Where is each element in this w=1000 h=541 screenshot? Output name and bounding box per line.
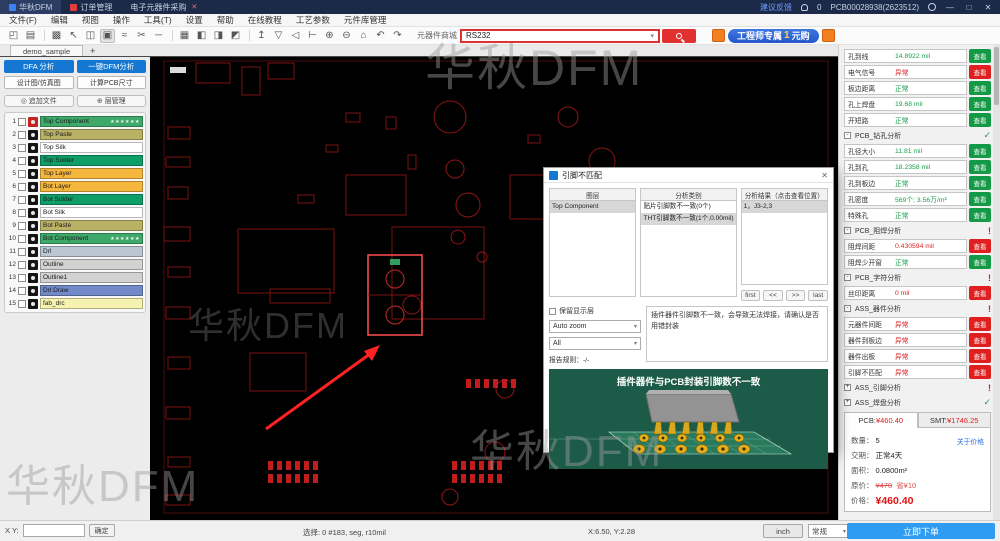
dialog-icon	[549, 171, 558, 180]
category-item-list: 贴片引脚数不一致(0个)THT引脚数不一致(1个,0.00mil)	[640, 201, 736, 297]
menu-bar: 文件(F)编辑视图操作工具(T)设置帮助在线教程工艺参数元件库管理	[0, 14, 1000, 27]
layer-name[interactable]: Top Layer ★★★★★★	[40, 168, 143, 179]
zoom-mode-value: Auto zoom	[553, 323, 586, 330]
keep-layer-checkbox[interactable]	[549, 308, 556, 315]
route-icon[interactable]: ≈	[117, 29, 132, 43]
layer-visibility-icon[interactable]	[28, 117, 38, 127]
tab-smt-price[interactable]: SMT: ¥1746.25	[918, 412, 992, 428]
layer-number: 10	[7, 235, 16, 242]
layer-row[interactable]: 2 Top Paste ★★★★★★	[7, 128, 143, 141]
confirm-button[interactable]: 确定	[89, 524, 115, 537]
dialog-title-bar[interactable]: 引脚不匹配 ✕	[544, 168, 833, 183]
app-tab-label: 华秋DFM	[19, 2, 52, 13]
menu-item[interactable]: 工艺参数	[296, 14, 330, 26]
analysis-row: 孔到板边 正常	[844, 176, 967, 190]
separator[interactable]	[249, 30, 250, 41]
layer-item-list: Top Component	[549, 201, 636, 297]
layer-number: 12	[7, 261, 16, 268]
layer-name-text: Top Component	[43, 118, 89, 125]
view-button[interactable]: 查看	[969, 349, 991, 363]
layer-list: 1 Top Component ★★★★★★ 2 Top Paste ★★★★★…	[4, 112, 146, 313]
layer-name-text: Top Layer	[43, 170, 72, 177]
layer-name[interactable]: Bot Solder ★★★★★★	[40, 194, 143, 205]
list-item[interactable]: THT引脚数不一致(1个,0.00mil)	[641, 213, 735, 225]
layer-row[interactable]: 14 Drl Draw ★★★★★★	[7, 284, 143, 297]
analysis-item: 引脚不匹配 引脚不匹配 异常 查看	[844, 364, 991, 380]
app-tab[interactable]: 华秋DFM	[0, 0, 61, 14]
layer-checkbox[interactable]	[18, 235, 26, 243]
layer-name[interactable]: Bot Silk ★★★★★★	[40, 207, 143, 218]
user-avatar[interactable]	[928, 3, 936, 11]
layer-name-text: Bot Layer	[43, 183, 71, 190]
analysis-value: 正常	[895, 115, 963, 125]
result-pagination: first<<>>last	[741, 290, 828, 301]
chevron-down-icon: ▾	[634, 323, 637, 330]
analysis-item: 元器件间距 元器件间距 异常 查看	[844, 316, 991, 332]
print-icon[interactable]: ▤	[23, 29, 38, 43]
view-button[interactable]: 查看	[969, 49, 991, 63]
analysis-row: 器件出板 异常	[844, 349, 967, 363]
view-button[interactable]: 查看	[969, 144, 991, 158]
bell-icon[interactable]	[801, 4, 808, 11]
layer-checkbox[interactable]	[18, 274, 26, 282]
layer-checkbox[interactable]	[18, 287, 26, 295]
promo-banner[interactable]: 工程师专属 1 元购	[712, 29, 835, 43]
layer-number: 9	[7, 222, 16, 229]
analysis-row: 孔上焊盘 19.68 mil	[844, 97, 967, 111]
analysis-item: - PCB_字符分析 ! PCB_字符分析 查看	[844, 270, 991, 285]
view-button[interactable]: 查看	[969, 208, 991, 222]
chevron-down-icon[interactable]: ▾	[650, 32, 654, 40]
view-button[interactable]: 查看	[969, 255, 991, 269]
analysis-item: 孔到线 孔到线 14.8922 mil 查看	[844, 48, 991, 64]
layer-row[interactable]: 13 Outline1 ★★★★★★	[7, 271, 143, 284]
layer-visibility-icon[interactable]	[28, 143, 38, 153]
section-status-icon: ✓	[983, 397, 991, 408]
layer-name[interactable]: Outline ★★★★★★	[40, 259, 143, 270]
flip-icon[interactable]: ◩	[228, 29, 243, 43]
layer-row[interactable]: 10 Bot Component ★★★★★★	[7, 232, 143, 245]
measure-icon[interactable]: ⊢	[305, 29, 320, 43]
layer-visibility-icon[interactable]	[28, 130, 38, 140]
pin-icon[interactable]: ↥	[254, 29, 269, 43]
layer-name[interactable]: Outline1 ★★★★★★	[40, 272, 143, 283]
menu-item[interactable]: 在线教程	[248, 14, 282, 26]
view-button[interactable]: 查看	[969, 176, 991, 190]
layer-mgmt-icon: ⊕	[97, 97, 103, 105]
collapse-icon[interactable]: -	[844, 132, 851, 139]
title-bar: 华秋DFM 订单管理 电子元器件采购 ✕ 建议反馈 0 PCB00028938(…	[0, 0, 1000, 14]
layer-number: 1	[7, 118, 16, 125]
maximize-button[interactable]: □	[964, 3, 974, 12]
redo-icon[interactable]: ↷	[390, 29, 405, 43]
order-tab-label: 订单管理	[80, 2, 112, 13]
layer-name-text: Bot Solder	[43, 196, 73, 203]
tab-close-icon[interactable]: ✕	[191, 3, 197, 11]
layer-row[interactable]: 11 Drl ★★★★★★	[7, 245, 143, 258]
analysis-row: 元器件间距 异常	[844, 317, 967, 331]
view-button[interactable]: 查看	[969, 192, 991, 206]
nav-button[interactable]: last	[808, 290, 828, 301]
result-column: 分析结果（点击查看位置） 1，J3-2,3 first<<>>last	[741, 188, 828, 301]
analysis-value: 异常	[895, 335, 963, 345]
layer-name[interactable]: Bot Component ★★★★★★	[40, 233, 143, 244]
layer-name-text: Top Silk	[43, 144, 66, 151]
order-management-tab[interactable]: 订单管理	[61, 0, 121, 14]
layer-visibility-icon[interactable]	[28, 156, 38, 166]
view-button[interactable]: 查看	[969, 317, 991, 331]
analysis-row: 板边距离 正常	[844, 81, 967, 95]
zoom-mode-select[interactable]: Auto zoom ▾	[549, 320, 641, 333]
layer-number: 13	[7, 274, 16, 281]
layer-visibility-icon[interactable]	[28, 208, 38, 218]
layer-checkbox[interactable]	[18, 300, 26, 308]
layer-checkbox[interactable]	[18, 118, 26, 126]
layer-row[interactable]: 5 Top Layer ★★★★★★	[7, 167, 143, 180]
analysis-value: 569个; 3.56万/m²	[895, 194, 963, 204]
collapse-icon[interactable]: +	[844, 399, 851, 406]
layer-checkbox[interactable]	[18, 183, 26, 191]
view-button[interactable]: 查看	[969, 113, 991, 127]
view-button[interactable]: 查看	[969, 333, 991, 347]
analysis-label: 器件到板边	[848, 335, 895, 345]
layer-name[interactable]: Bot Layer ★★★★★★	[40, 181, 143, 192]
analysis-label: 引脚不匹配	[848, 367, 895, 377]
xy-label: X Y:	[5, 526, 19, 535]
layer-visibility-icon[interactable]	[28, 221, 38, 231]
layer-visibility-icon[interactable]	[28, 169, 38, 179]
layer-number: 14	[7, 287, 16, 294]
analysis-label: 器件出板	[848, 351, 895, 361]
layer-row[interactable]: 7 Bot Solder ★★★★★★	[7, 193, 143, 206]
analysis-item: 电气信号 电气信号 异常 查看	[844, 64, 991, 80]
component-shop-label: 元器件商城	[417, 30, 457, 41]
layer-row[interactable]: 1 Top Component ★★★★★★	[7, 115, 143, 128]
view-button[interactable]: 查看	[969, 81, 991, 95]
layer-name[interactable]: Drl Draw ★★★★★★	[40, 285, 143, 296]
analysis-item: 阻焊间距 阻焊间距 0.430594 mil 查看	[844, 238, 991, 254]
layer-visibility-icon[interactable]	[28, 260, 38, 270]
separator[interactable]	[44, 30, 45, 41]
undo-icon[interactable]: ↶	[373, 29, 388, 43]
status-bar: X Y: 确定 选择: 0 #183, seg, r10mil X:6.50, …	[0, 520, 1000, 541]
coordinate-input[interactable]	[23, 524, 85, 537]
unit-toggle-button[interactable]: inch	[763, 524, 803, 538]
view-button[interactable]: 查看	[969, 160, 991, 174]
layer-visibility-icon[interactable]	[28, 299, 38, 309]
analysis-label: 阻焊少开窗	[848, 257, 895, 267]
analysis-list: 孔到线 孔到线 14.8922 mil 查看 电气信号 电气信号 异常 查看	[839, 45, 1000, 410]
analysis-row: 特殊孔 正常	[844, 208, 967, 222]
analysis-label: 元器件间距	[848, 319, 895, 329]
section-label: ASS_焊盘分析	[855, 398, 901, 408]
layer-name[interactable]: Top Silk ★★★★★★	[40, 142, 143, 153]
layer-name[interactable]: Top Component ★★★★★★	[40, 116, 143, 127]
nav-button[interactable]: >>	[786, 290, 806, 301]
analysis-value: 正常	[895, 178, 963, 188]
panel-icon[interactable]: ▩	[49, 29, 64, 43]
close-button[interactable]: ✕	[983, 3, 993, 12]
line-icon[interactable]: ─	[151, 29, 166, 43]
section-label: PCB_阻焊分析	[855, 226, 901, 236]
layer-checkbox[interactable]	[18, 157, 26, 165]
gift-icon	[712, 29, 725, 42]
layer-stars: ★★★★★★	[110, 119, 140, 125]
layer-row[interactable]: 9 Bot Paste ★★★★★★	[7, 219, 143, 232]
layer-row[interactable]: 8 Bot Silk ★★★★★★	[7, 206, 143, 219]
search-icon	[676, 33, 682, 39]
view-button[interactable]: 查看	[969, 365, 991, 379]
menu-item[interactable]: 视图	[82, 14, 99, 26]
align-left-icon[interactable]: ◧	[194, 29, 209, 43]
list-item[interactable]: 1，J3-2,3	[742, 201, 827, 213]
layer-number: 5	[7, 170, 16, 177]
section-label: PCB_钻孔分析	[855, 131, 901, 141]
analysis-value: 0 mil	[895, 290, 963, 297]
cut-icon[interactable]: ✂	[134, 29, 149, 43]
savings-value: 省¥10	[896, 480, 916, 491]
section-status-icon: !	[988, 273, 991, 283]
analysis-value: 正常	[895, 210, 963, 220]
layer-name-text: Top Paste	[43, 131, 72, 138]
pointer-arrow	[266, 345, 380, 429]
layer-number: 2	[7, 131, 16, 138]
section-label: PCB_字符分析	[855, 273, 901, 283]
column-header: 图层	[549, 188, 636, 201]
analysis-value: 11.81 mil	[895, 148, 963, 155]
analysis-item: - PCB_阻焊分析 ! PCB_阻焊分析 查看	[844, 223, 991, 238]
layer-checkbox[interactable]	[18, 196, 26, 204]
layer-name-text: Bot Paste	[43, 222, 71, 229]
layer-name[interactable]: Top Paste ★★★★★★	[40, 129, 143, 140]
about-price-link[interactable]: 关于价格	[957, 436, 984, 446]
menu-item[interactable]: 设置	[186, 14, 203, 26]
keep-layer-label: 保留显示层	[559, 306, 594, 316]
document-tab-bar: demo_sample +	[0, 45, 838, 57]
analysis-label: 孔上焊盘	[848, 99, 895, 109]
speaker-icon[interactable]: ◁	[288, 29, 303, 43]
analysis-row: 孔到孔 18.2358 mil	[844, 160, 967, 174]
layer-name[interactable]: Top Solder ★★★★★★	[40, 155, 143, 166]
tab-demo-sample[interactable]: demo_sample	[10, 45, 83, 56]
nav-button[interactable]: <<	[763, 290, 783, 301]
zoom-out-icon[interactable]: ⊖	[339, 29, 354, 43]
layer-visibility-icon[interactable]	[28, 286, 38, 296]
layer-number: 8	[7, 209, 16, 216]
menu-item[interactable]: 编辑	[51, 14, 68, 26]
menu-item[interactable]: 文件(F)	[9, 14, 37, 26]
component-purchase-tab[interactable]: 电子元器件采购 ✕	[121, 0, 206, 14]
promo-pill[interactable]: 工程师专属 1 元购	[728, 29, 819, 43]
tab-pcb-price[interactable]: PCB: ¥460.40	[844, 412, 918, 428]
layer-checkbox[interactable]	[18, 170, 26, 178]
analysis-item: - PCB_钻孔分析 ✓ PCB_钻孔分析 查看	[844, 128, 991, 143]
analysis-item: 孔上焊盘 孔上焊盘 19.68 mil 查看	[844, 96, 991, 112]
filter-icon[interactable]: ▽	[271, 29, 286, 43]
menu-item[interactable]: 帮助	[217, 14, 234, 26]
scrollbar[interactable]	[993, 45, 1000, 521]
add-tab-button[interactable]: +	[83, 46, 102, 56]
analysis-item: 孔到板边 孔到板边 正常 查看	[844, 175, 991, 191]
layer-visibility-icon[interactable]	[28, 273, 38, 283]
layer-number: 11	[7, 248, 16, 255]
layer-select-icon[interactable]: ◫	[83, 29, 98, 43]
list-item[interactable]: 贴片引脚数不一致(0个)	[641, 201, 735, 213]
layer-checkbox[interactable]	[18, 261, 26, 269]
analysis-panel: 孔到线 孔到线 14.8922 mil 查看 电气信号 电气信号 异常 查看	[838, 45, 1000, 521]
layer-management-button[interactable]: ⊕ 层管理	[77, 95, 147, 107]
layer-name[interactable]: Bot Paste ★★★★★★	[40, 220, 143, 231]
view-button[interactable]: 查看	[969, 286, 991, 300]
collapse-icon[interactable]: -	[844, 274, 851, 281]
layer-checkbox[interactable]	[18, 222, 26, 230]
mode-select[interactable]: 常规 ▾	[808, 524, 850, 538]
analysis-value: 18.2358 mil	[895, 164, 963, 171]
app-logo-icon	[9, 4, 16, 11]
dfa-analysis-button[interactable]: DFA 分析	[4, 60, 74, 73]
filter-value: All	[553, 340, 561, 347]
layer-visibility-icon[interactable]	[28, 247, 38, 257]
layer-name-text: Bot Component	[43, 235, 88, 242]
order-tab-icon	[70, 4, 77, 11]
layer-row[interactable]: 12 Outline ★★★★★★	[7, 258, 143, 271]
layer-visibility-icon[interactable]	[28, 182, 38, 192]
category-column: 分析类别 贴片引脚数不一致(0个)THT引脚数不一致(1个,0.00mil)	[640, 188, 736, 301]
collapse-icon[interactable]: -	[844, 227, 851, 234]
analysis-value: 异常	[895, 319, 963, 329]
analysis-item: - ASS_器件分析 ! ASS_器件分析 查看	[844, 301, 991, 316]
section-status-icon: ✓	[983, 130, 991, 141]
analysis-label: 特殊孔	[848, 210, 895, 220]
layer-mgmt-label: 层管理	[105, 96, 126, 106]
analysis-row: 器件到板边 异常	[844, 333, 967, 347]
pin-mismatch-dialog: 引脚不匹配 ✕ 图层 Top Component 分析类别 贴片引脚数不一致(0…	[543, 167, 834, 453]
result-item-list: 1，J3-2,3	[741, 201, 828, 285]
layer-row[interactable]: 6 Bot Layer ★★★★★★	[7, 180, 143, 193]
analysis-value: 19.68 mil	[895, 101, 963, 108]
separator[interactable]	[172, 30, 173, 41]
scrollbar-thumb[interactable]	[994, 47, 999, 105]
analysis-row: 孔密度 569个; 3.56万/m²	[844, 192, 967, 206]
layer-column: 图层 Top Component	[549, 188, 636, 301]
purchase-tab-label: 电子元器件采购	[130, 2, 186, 13]
component-search-input[interactable]: RS232 ▾	[460, 29, 660, 43]
lead-time-label: 交期：	[851, 450, 874, 461]
menu-item[interactable]: 操作	[113, 14, 130, 26]
search-value: RS232	[466, 31, 490, 40]
layer-checkbox[interactable]	[18, 144, 26, 152]
layer-visibility-icon[interactable]	[28, 195, 38, 205]
order-number: PCB00028938(2623512)	[830, 3, 919, 12]
analysis-row: 孔径大小 11.81 mil	[844, 144, 967, 158]
minimize-button[interactable]: —	[945, 3, 955, 12]
section-label: ASS_器件分析	[855, 304, 901, 314]
one-click-dfm-button[interactable]: 一键DFM分析	[77, 60, 147, 73]
nav-button[interactable]: first	[741, 290, 761, 301]
issue-preview-panel: 插件器件与PCB封装引脚数不一致	[549, 369, 828, 469]
highlighted-component	[368, 255, 422, 335]
list-item[interactable]: Top Component	[550, 201, 635, 213]
analysis-value: 异常	[895, 351, 963, 361]
analysis-row: 开短路 正常	[844, 113, 967, 127]
snapshot-icon[interactable]: ▣	[100, 29, 115, 43]
section-status-icon: !	[988, 304, 991, 314]
filter-select[interactable]: All ▾	[549, 337, 641, 350]
calc-pcb-size-button[interactable]: 计算PCB尺寸	[77, 76, 147, 89]
feedback-link[interactable]: 建议反馈	[760, 2, 792, 13]
analysis-value: 正常	[895, 257, 963, 267]
layer-row[interactable]: 3 Top Silk ★★★★★★	[7, 141, 143, 154]
select-icon[interactable]: ↖	[66, 29, 81, 43]
layer-stars: ★★★★★★	[110, 236, 140, 242]
dialog-close-icon[interactable]: ✕	[821, 171, 828, 180]
lead-time-value: 正常4天	[876, 450, 903, 461]
analysis-label: 丝印距离	[848, 288, 895, 298]
layer-row[interactable]: 15 fab_drc ★★★★★★	[7, 297, 143, 310]
pcb-tab-label: PCB:	[858, 416, 876, 425]
chevron-down-icon: ▾	[843, 528, 846, 535]
dialog-title: 引脚不匹配	[562, 170, 602, 181]
qty-label: 数量：	[851, 435, 874, 446]
design-sim-button[interactable]: 设计图/仿真图	[4, 76, 74, 89]
append-file-button[interactable]: ◎ 追加文件	[4, 95, 74, 107]
zoom-in-icon[interactable]: ⊕	[322, 29, 337, 43]
section-label: ASS_引脚分析	[855, 383, 901, 393]
menu-item[interactable]: 元件库管理	[344, 14, 387, 26]
search-button[interactable]	[662, 29, 696, 43]
mirror-icon[interactable]: ◨	[211, 29, 226, 43]
analysis-label: 孔到板边	[848, 178, 895, 188]
analysis-item: + ASS_焊盘分析 ✓ ASS_焊盘分析 查看	[844, 395, 991, 410]
view-button[interactable]: 查看	[969, 239, 991, 253]
place-order-button[interactable]: 立即下单	[847, 523, 995, 539]
layer-number: 3	[7, 144, 16, 151]
collapse-icon[interactable]: -	[844, 305, 851, 312]
layer-name[interactable]: fab_drc ★★★★★★	[40, 298, 143, 309]
collapse-icon[interactable]: +	[844, 384, 851, 391]
layer-checkbox[interactable]	[18, 131, 26, 139]
analysis-label: 孔到孔	[848, 162, 895, 172]
analysis-item: 特殊孔 特殊孔 正常 查看	[844, 207, 991, 223]
layer-row[interactable]: 4 Top Solder ★★★★★★	[7, 154, 143, 167]
layer-checkbox[interactable]	[18, 248, 26, 256]
analysis-label: 板边距离	[848, 83, 895, 93]
analysis-row: 阻焊少开窗 正常	[844, 255, 967, 269]
analysis-value: 0.430594 mil	[895, 243, 963, 250]
analysis-item: + ASS_引脚分析 ! ASS_引脚分析 查看	[844, 380, 991, 395]
analysis-item: 孔径大小 孔径大小 11.81 mil 查看	[844, 143, 991, 159]
open-icon[interactable]: ◰	[6, 29, 21, 43]
analysis-label: 阻焊间距	[848, 241, 895, 251]
analysis-row: 阻焊间距 0.430594 mil	[844, 239, 967, 253]
analysis-label: 开短路	[848, 115, 895, 125]
home-icon[interactable]: ⌂	[356, 29, 371, 43]
layer-visibility-icon[interactable]	[28, 234, 38, 244]
grid-icon[interactable]: ▦	[177, 29, 192, 43]
view-button[interactable]: 查看	[969, 65, 991, 79]
analysis-row: 引脚不匹配 异常	[844, 365, 967, 379]
view-button[interactable]: 查看	[969, 97, 991, 111]
analysis-row: 电气信号 异常	[844, 65, 967, 79]
layer-checkbox[interactable]	[18, 209, 26, 217]
smt-tab-label: SMT:	[930, 416, 947, 425]
layer-name[interactable]: Drl ★★★★★★	[40, 246, 143, 257]
analysis-row: 孔到线 14.8922 mil	[844, 49, 967, 63]
analysis-item: 板边距离 板边距离 正常 查看	[844, 80, 991, 96]
menu-item[interactable]: 工具(T)	[144, 14, 172, 26]
analysis-value: 异常	[895, 367, 963, 377]
original-price-value: ¥470	[876, 481, 893, 490]
